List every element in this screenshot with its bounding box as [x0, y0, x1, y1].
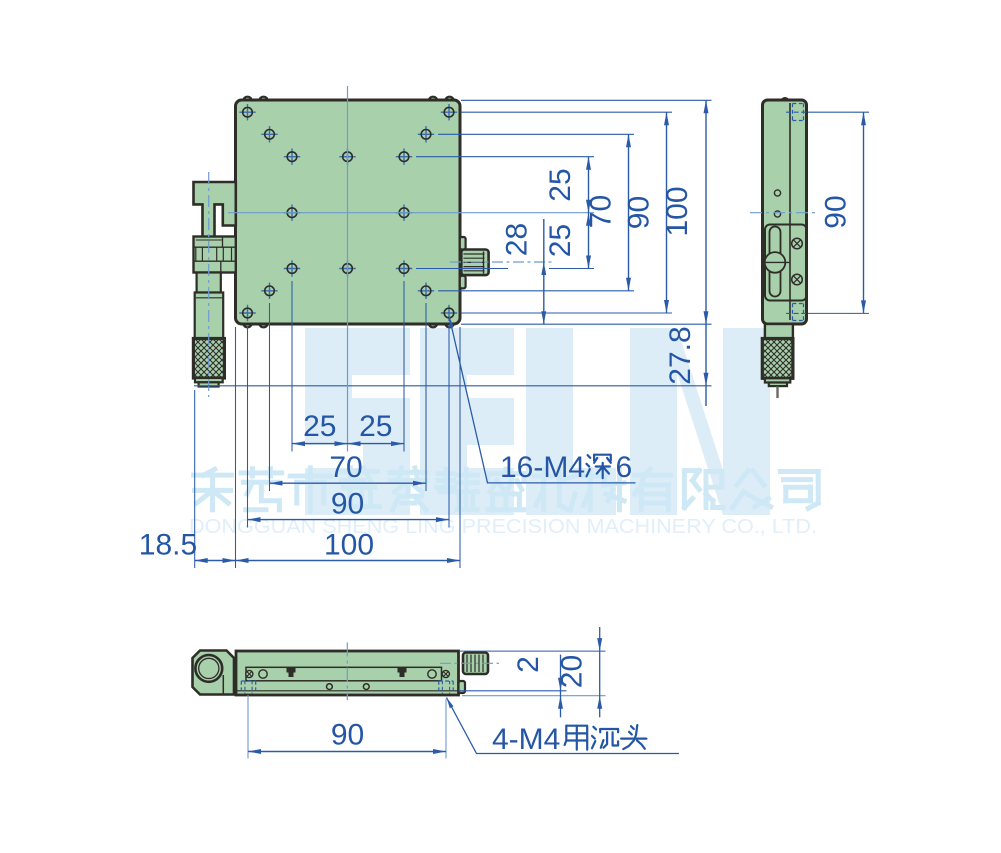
- svg-text:90: 90: [331, 719, 364, 752]
- svg-text:70: 70: [329, 451, 362, 484]
- svg-text:100: 100: [661, 186, 694, 236]
- svg-text:25: 25: [303, 410, 336, 443]
- svg-text:2: 2: [512, 656, 545, 673]
- svg-text:70: 70: [585, 195, 618, 228]
- svg-text:25: 25: [544, 224, 577, 257]
- svg-text:4-M4: 4-M4: [492, 723, 560, 756]
- svg-text:25: 25: [544, 168, 577, 201]
- svg-text:90: 90: [623, 196, 656, 229]
- svg-text:28: 28: [501, 223, 534, 256]
- svg-text:90: 90: [820, 195, 853, 228]
- svg-text:16-M4: 16-M4: [500, 451, 585, 484]
- svg-text:18.5: 18.5: [139, 529, 197, 562]
- svg-text:25: 25: [359, 410, 392, 443]
- svg-text:100: 100: [324, 529, 374, 562]
- svg-text:27.8: 27.8: [664, 326, 697, 384]
- svg-text:DONGGUAN SHENG LING PRECISION: DONGGUAN SHENG LING PRECISION MACHINERY …: [189, 515, 817, 538]
- svg-text:90: 90: [331, 488, 364, 521]
- svg-text:6: 6: [616, 451, 633, 484]
- svg-text:20: 20: [556, 655, 589, 688]
